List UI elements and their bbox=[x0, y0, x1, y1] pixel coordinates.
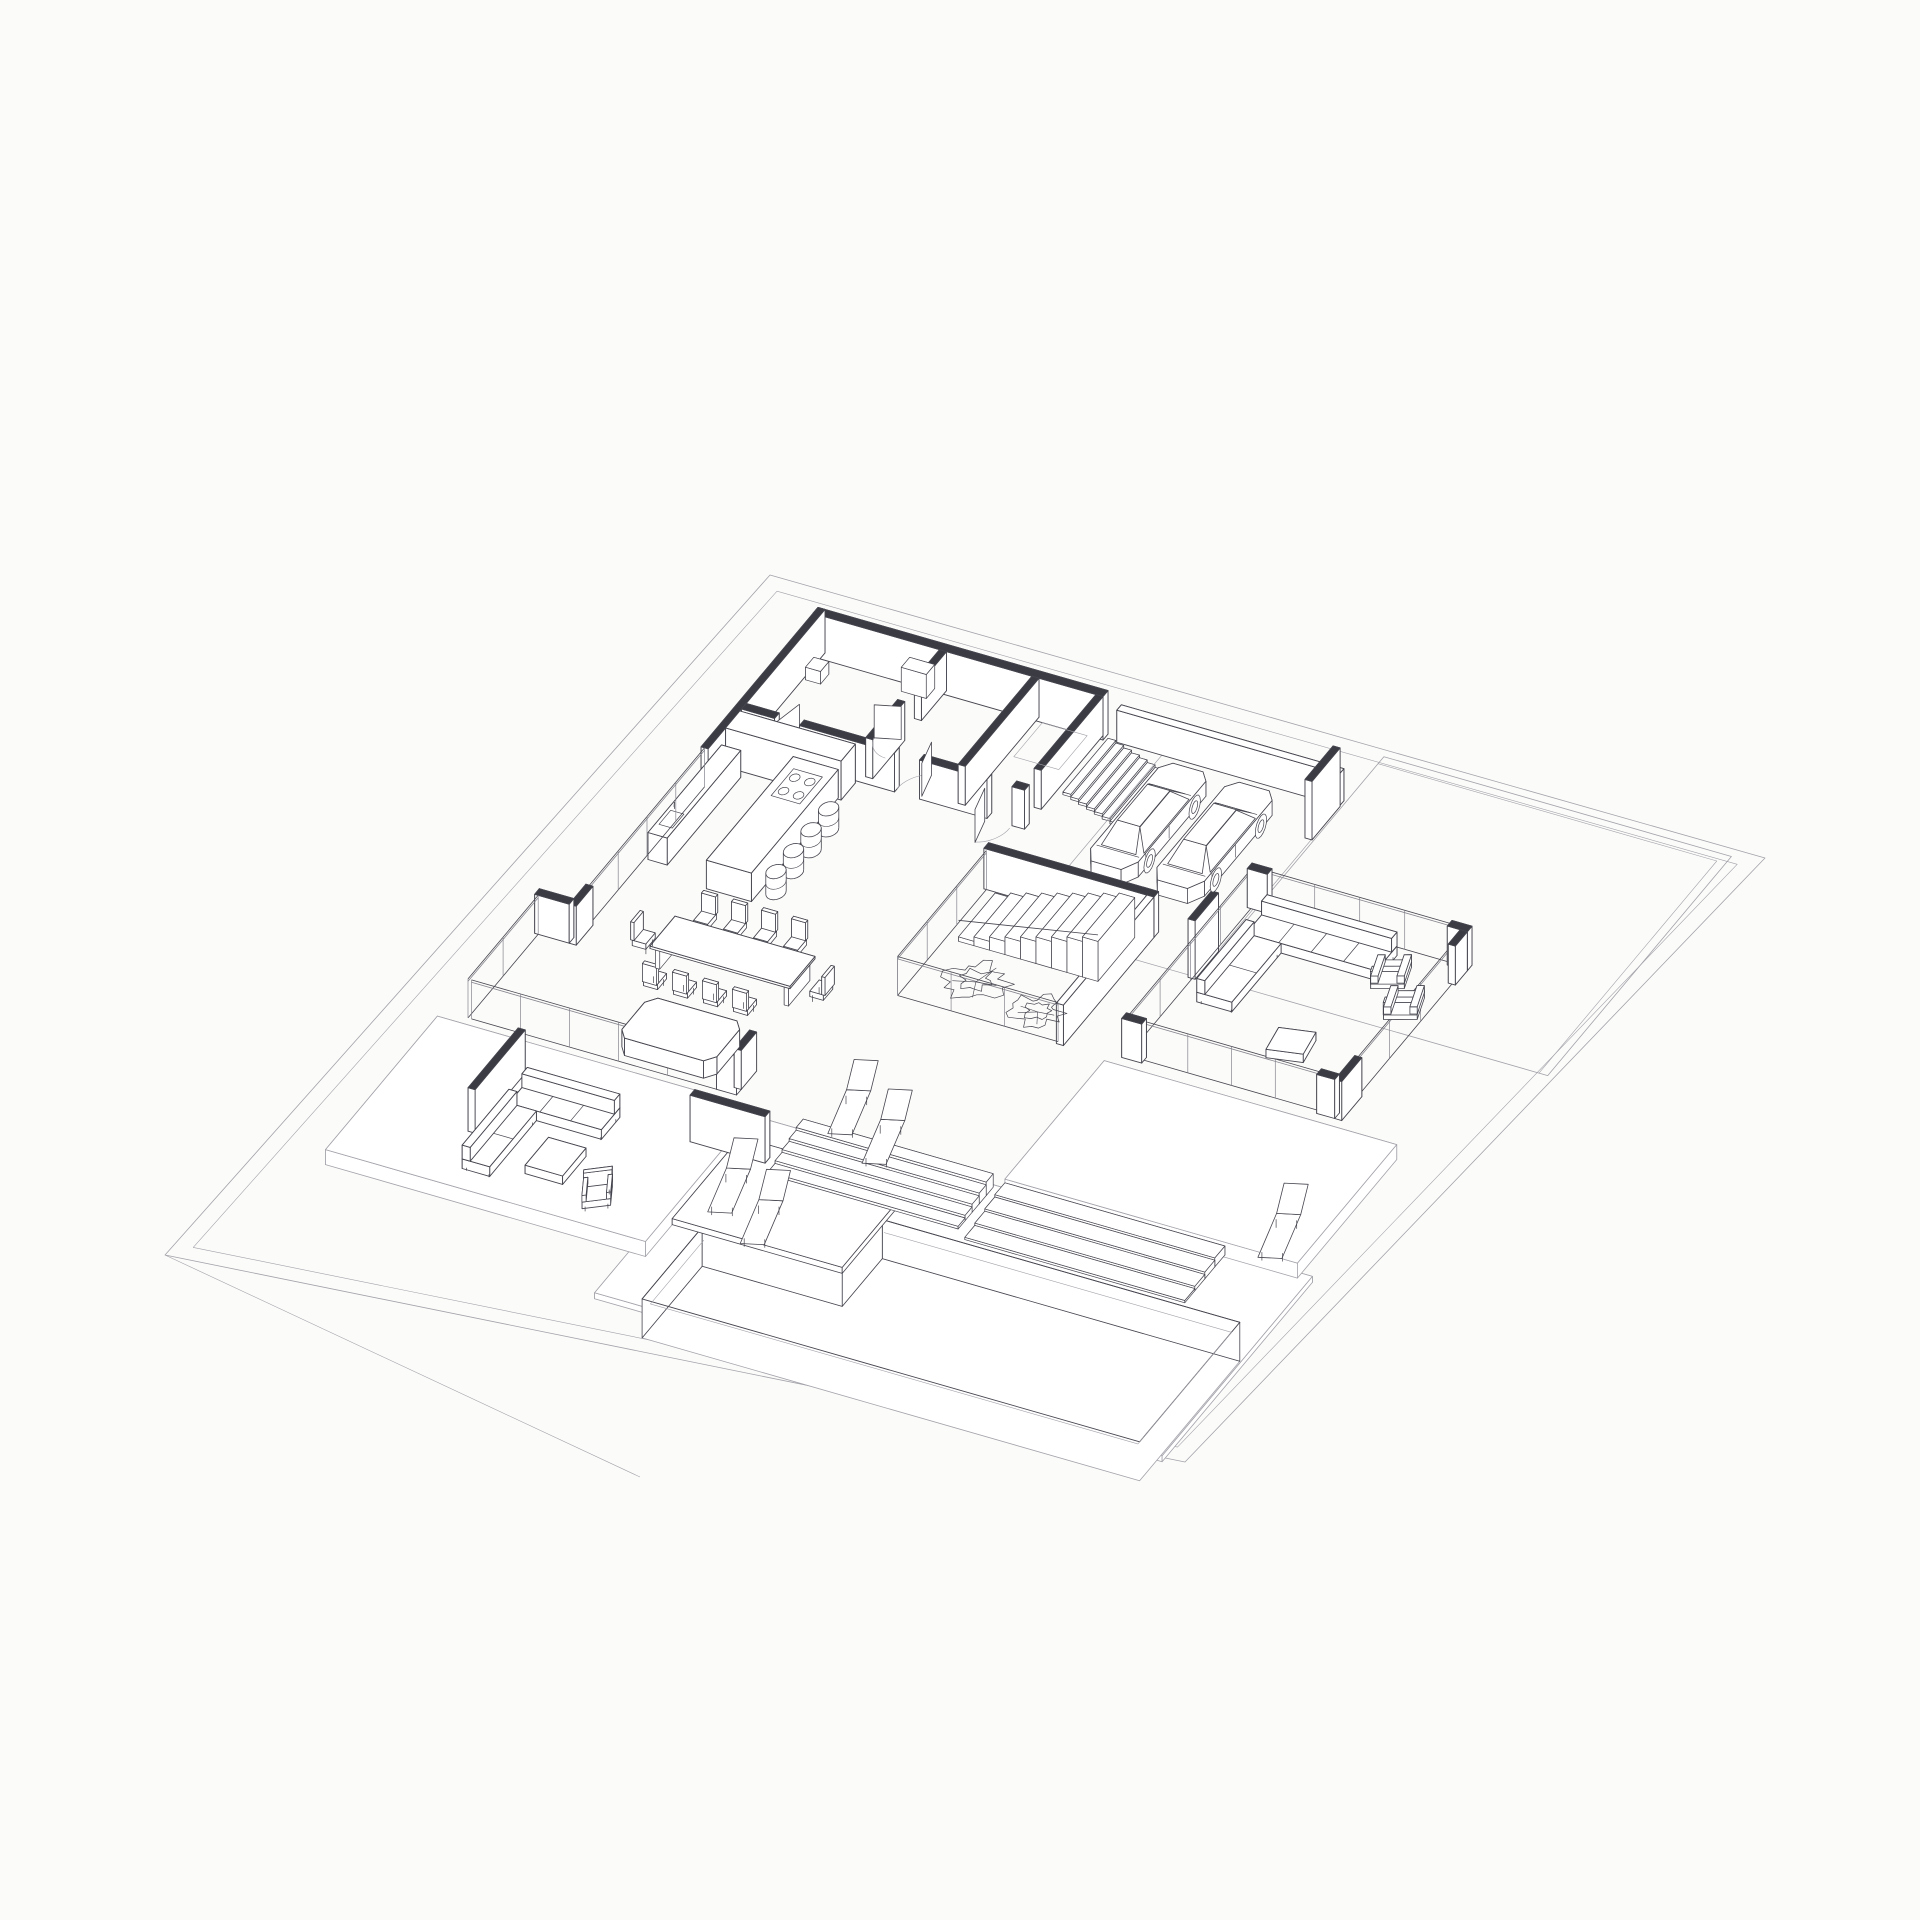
dining-set bbox=[631, 890, 835, 1015]
courtyard-stairs bbox=[959, 893, 1135, 981]
living-room-furniture bbox=[1197, 895, 1425, 1063]
sheet bbox=[0, 0, 1920, 1920]
courtyard-trees bbox=[941, 960, 1067, 1028]
axonometric-floor-plan bbox=[0, 0, 1920, 1920]
daybed bbox=[622, 998, 740, 1078]
